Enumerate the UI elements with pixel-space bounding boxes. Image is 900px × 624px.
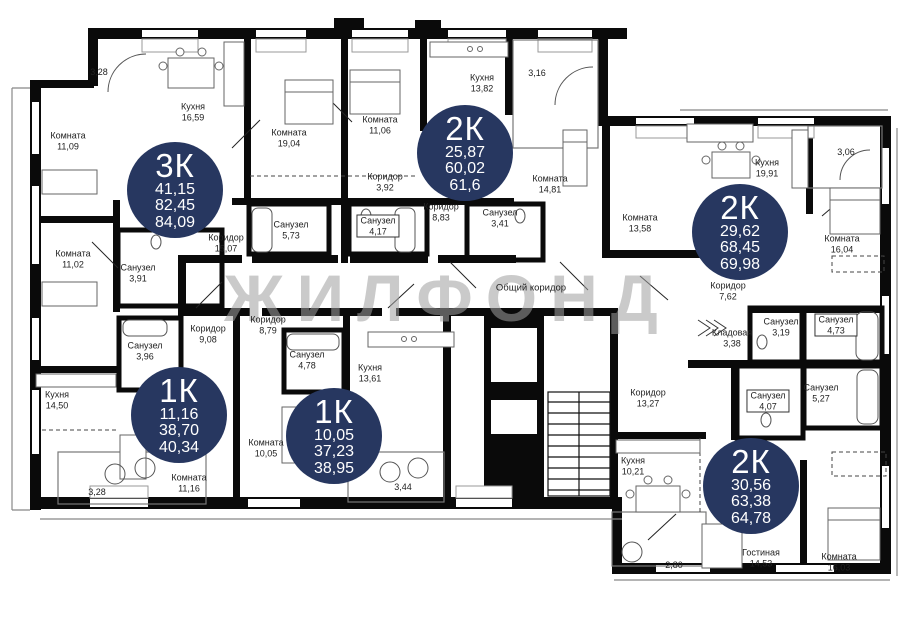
room-label: Кухня14,50 <box>45 390 69 411</box>
unit-badge: 2К 25,87 60,02 61,6 <box>417 105 513 201</box>
room-label: Комната10,05 <box>248 438 283 459</box>
room-label: Коридор13,27 <box>630 388 666 409</box>
room-label: Комната16,04 <box>824 234 859 255</box>
balcony-area-label: 2,80 <box>665 560 683 570</box>
unit-type: 2К <box>445 112 485 145</box>
room-label: Комната11,02 <box>55 249 90 270</box>
room-label: Санузел3,91 <box>120 263 155 284</box>
room-label: Комната11,16 <box>171 473 206 494</box>
balcony-area-label: 3,28 <box>90 67 108 77</box>
unit-type: 3К <box>155 149 195 182</box>
room-label: Коридор9,08 <box>190 324 226 345</box>
room-label: Комната11,06 <box>362 115 397 136</box>
unit-type: 2К <box>720 191 760 224</box>
room-label: Санузел4,73 <box>814 314 857 337</box>
room-label: Коридор8,83 <box>423 202 459 223</box>
room-label: Коридор7,62 <box>710 281 746 302</box>
balcony-area-label: 3,16 <box>528 68 546 78</box>
room-label: Коридор3,92 <box>367 172 403 193</box>
balcony-area-label: 3,06 <box>837 147 855 157</box>
room-label: Санузел5,73 <box>273 220 308 241</box>
unit-badge: 1К 11,16 38,70 40,34 <box>131 367 227 463</box>
room-label: Коридор8,79 <box>250 315 286 336</box>
room-label: Коридор15,07 <box>208 233 244 254</box>
unit-badge: 3К 41,15 82,45 84,09 <box>127 142 223 238</box>
room-label: Гостиная14,53 <box>742 548 780 569</box>
unit-badge: 2К 29,62 68,45 69,98 <box>692 184 788 280</box>
common-corridor-label: Общий коридор <box>496 283 566 294</box>
unit-badge: 1К 10,05 37,23 38,95 <box>286 388 382 484</box>
room-label: Кладовая3,38 <box>712 328 752 349</box>
balcony-area-label: 3,44 <box>394 482 412 492</box>
room-label: Кухня19,91 <box>755 158 779 179</box>
unit-badge: 2К 30,56 63,38 64,78 <box>703 438 799 534</box>
room-label: Кухня16,59 <box>181 102 205 123</box>
room-label: Комната11,09 <box>50 131 85 152</box>
room-label: Санузел4,07 <box>746 390 789 413</box>
room-label: Кухня13,82 <box>470 73 494 94</box>
unit-type: 2К <box>731 445 771 478</box>
room-label: Кухня10,21 <box>621 456 645 477</box>
room-label: Санузел4,17 <box>356 215 399 238</box>
room-label: Кухня13,61 <box>358 363 382 384</box>
floorplan: ЖИЛФОНД 3К 41,15 82,45 84,09 2К 25,87 60… <box>0 0 900 624</box>
room-label: Санузел3,96 <box>127 341 162 362</box>
room-label: Комната14,81 <box>532 174 567 195</box>
unit-type: 1К <box>314 395 354 428</box>
room-label: Санузел5,27 <box>803 383 838 404</box>
room-label: Санузел3,19 <box>763 317 798 338</box>
unit-type: 1К <box>159 374 199 407</box>
room-label: Комната16,03 <box>821 552 856 573</box>
watermark: ЖИЛФОНД <box>224 260 671 336</box>
room-label: Санузел3,41 <box>482 208 517 229</box>
balcony-area-label: 3,28 <box>88 487 106 497</box>
room-label: Комната19,04 <box>271 128 306 149</box>
room-label: Комната13,58 <box>622 213 657 234</box>
room-label: Санузел4,78 <box>289 350 324 371</box>
